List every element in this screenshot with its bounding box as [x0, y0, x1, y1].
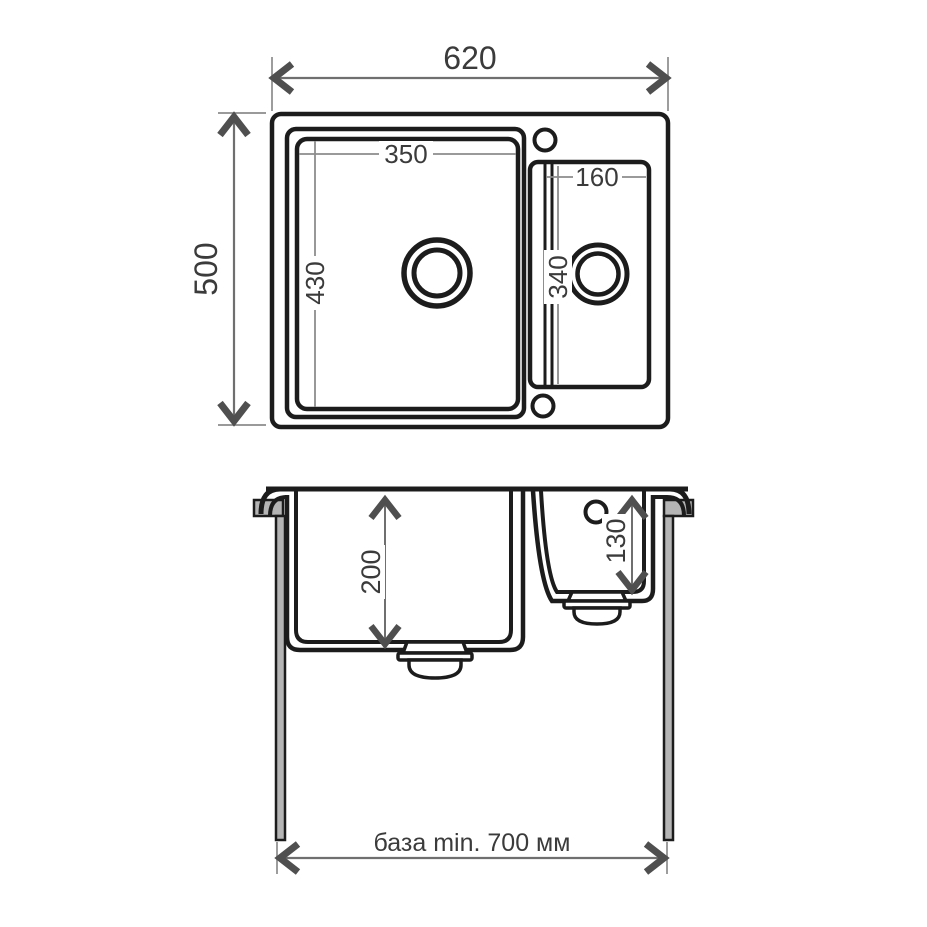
main-bowl-section-inner [296, 491, 511, 642]
dim-label-160: 160 [575, 162, 618, 192]
cabinet-side-right [664, 516, 673, 840]
dim-label-500: 500 [188, 242, 224, 295]
main-bowl-drain-fitting [398, 642, 472, 678]
dim-main-bowl-width: 350 [299, 139, 516, 169]
dim-label-200: 200 [356, 549, 386, 594]
dim-base-cabinet: база min. 700 мм [277, 829, 667, 874]
dim-label-430: 430 [300, 261, 330, 304]
dim-overall-width: 620 [272, 40, 668, 111]
dim-second-bowl-width: 160 [546, 162, 646, 192]
technical-drawing: 620 500 [0, 0, 927, 927]
dim-main-bowl-depth: 200 [356, 500, 399, 644]
sink-drawing-canvas: 620 500 [0, 0, 927, 927]
second-bowl-drain-fitting [564, 592, 630, 624]
dim-main-bowl-length: 430 [300, 141, 330, 407]
main-bowl-section-outer [287, 491, 523, 650]
top-view: 620 500 [188, 40, 668, 427]
dim-label-base: база min. 700 мм [374, 829, 571, 857]
dim-label-340: 340 [543, 255, 573, 298]
tap-hole-top [535, 130, 556, 151]
dim-second-bowl-length: 340 [543, 166, 573, 384]
main-bowl-drain [404, 240, 470, 306]
dim-label-350: 350 [384, 139, 427, 169]
dim-label-130: 130 [601, 518, 631, 563]
tap-hole-bottom [533, 396, 554, 417]
main-bowl-inner-outline [297, 139, 518, 409]
front-view: 200 130 база min. 700 мм [254, 489, 693, 874]
second-bowl-drain [569, 245, 627, 303]
dim-label-620: 620 [443, 40, 496, 76]
cabinet-side-left [276, 516, 285, 840]
dim-overall-depth: 500 [188, 113, 266, 425]
